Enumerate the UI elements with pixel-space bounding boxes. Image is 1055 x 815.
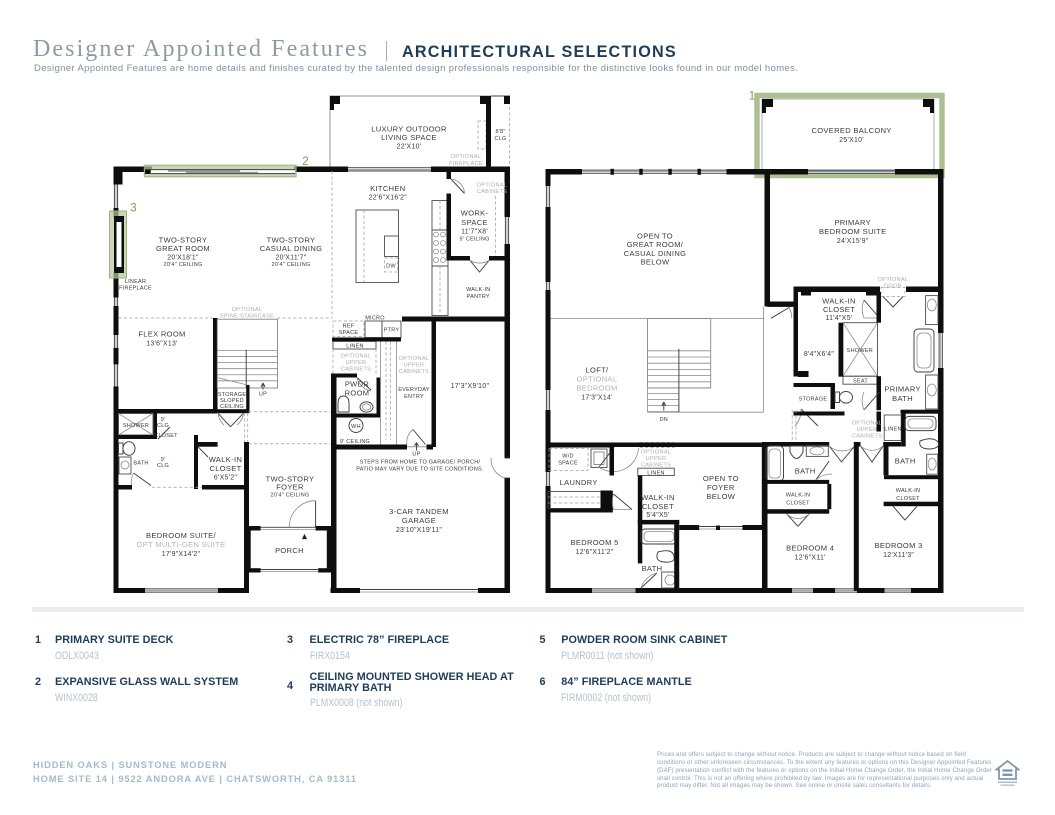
svg-text:WALK-IN: WALK-IN bbox=[896, 488, 920, 494]
svg-text:22'6"X16'2": 22'6"X16'2" bbox=[369, 195, 408, 202]
svg-text:BEDROOM SUITE/: BEDROOM SUITE/ bbox=[146, 531, 216, 540]
svg-text:UPPER: UPPER bbox=[857, 427, 878, 433]
svg-text:WALK-IN: WALK-IN bbox=[786, 493, 810, 499]
svg-text:OPTIONAL: OPTIONAL bbox=[852, 421, 883, 427]
svg-text:DW: DW bbox=[386, 264, 396, 270]
svg-text:SHOWER: SHOWER bbox=[123, 423, 149, 429]
svg-text:PRIMARY: PRIMARY bbox=[884, 385, 921, 394]
svg-text:20'4" CEILING: 20'4" CEILING bbox=[164, 262, 203, 268]
svg-text:GARAGE: GARAGE bbox=[402, 516, 436, 525]
svg-text:20'4" CEILING: 20'4" CEILING bbox=[271, 493, 310, 499]
svg-text:CABINETS: CABINETS bbox=[399, 369, 429, 375]
svg-text:STORAGE: STORAGE bbox=[218, 392, 247, 398]
svg-text:PWDR: PWDR bbox=[345, 380, 370, 389]
svg-text:BATH: BATH bbox=[895, 457, 916, 466]
svg-text:CEILING: CEILING bbox=[220, 404, 244, 410]
svg-text:BELOW: BELOW bbox=[706, 492, 735, 501]
svg-text:11'7"X8': 11'7"X8' bbox=[461, 228, 488, 235]
svg-text:LINEAR: LINEAR bbox=[125, 279, 146, 285]
svg-text:5'4"X5': 5'4"X5' bbox=[646, 512, 669, 519]
svg-text:OPTIONAL: OPTIONAL bbox=[477, 183, 508, 189]
svg-text:2: 2 bbox=[302, 156, 308, 168]
svg-text:W/D: W/D bbox=[562, 454, 573, 460]
svg-text:EVERYDAY: EVERYDAY bbox=[398, 387, 430, 393]
svg-text:11'4"X5': 11'4"X5' bbox=[826, 315, 853, 322]
svg-text:FLEX ROOM: FLEX ROOM bbox=[138, 330, 185, 339]
svg-text:COVERED BALCONY: COVERED BALCONY bbox=[811, 126, 891, 135]
svg-text:FOYER: FOYER bbox=[707, 483, 735, 492]
svg-text:CLOSET: CLOSET bbox=[786, 501, 810, 507]
svg-text:WALK-IN: WALK-IN bbox=[209, 455, 242, 464]
svg-text:WORK-: WORK- bbox=[461, 209, 489, 218]
svg-text:CLG: CLG bbox=[157, 423, 169, 429]
svg-text:PORCH: PORCH bbox=[275, 546, 304, 555]
svg-text:CABINETS: CABINETS bbox=[852, 434, 882, 440]
svg-text:12'6"X11': 12'6"X11' bbox=[795, 555, 826, 562]
svg-text:DOOR: DOOR bbox=[884, 284, 902, 290]
svg-text:CLG: CLG bbox=[494, 136, 506, 142]
svg-text:CLOSET: CLOSET bbox=[896, 496, 920, 502]
svg-text:PTRY: PTRY bbox=[384, 328, 400, 334]
svg-text:GREAT ROOM: GREAT ROOM bbox=[156, 244, 210, 253]
svg-text:BATH: BATH bbox=[133, 461, 148, 467]
svg-text:LINEN: LINEN bbox=[884, 427, 901, 433]
svg-text:CLG: CLG bbox=[157, 463, 169, 469]
svg-text:12'X11'3": 12'X11'3" bbox=[883, 552, 914, 559]
svg-text:SHOWER: SHOWER bbox=[847, 348, 873, 354]
svg-text:UPPER: UPPER bbox=[346, 360, 367, 366]
svg-text:9' CEILING: 9' CEILING bbox=[460, 237, 490, 243]
svg-text:PRIMARY: PRIMARY bbox=[834, 218, 871, 227]
svg-text:CLOSET: CLOSET bbox=[642, 502, 674, 511]
svg-text:BEDROOM 4: BEDROOM 4 bbox=[786, 544, 834, 553]
svg-text:FOYER: FOYER bbox=[276, 483, 304, 492]
svg-text:OPTIONAL: OPTIONAL bbox=[577, 375, 618, 384]
svg-text:SPACE: SPACE bbox=[558, 461, 578, 467]
svg-text:OPTIONAL: OPTIONAL bbox=[641, 450, 672, 456]
svg-text:LIVING SPACE: LIVING SPACE bbox=[381, 133, 437, 142]
svg-text:WALK-IN: WALK-IN bbox=[641, 493, 674, 502]
svg-text:BEDROOM SUITE: BEDROOM SUITE bbox=[819, 227, 886, 236]
svg-text:CABINETS: CABINETS bbox=[477, 189, 507, 195]
svg-text:20'X18'1": 20'X18'1" bbox=[167, 254, 199, 261]
svg-text:STEPS FROM HOME TO GARAGE/ POR: STEPS FROM HOME TO GARAGE/ PORCH/ bbox=[360, 460, 481, 466]
svg-text:3-CAR TANDEM: 3-CAR TANDEM bbox=[389, 507, 449, 516]
svg-text:24'X15'9": 24'X15'9" bbox=[837, 238, 869, 245]
svg-text:17'3"X9'10": 17'3"X9'10" bbox=[451, 383, 490, 390]
svg-text:ROOM: ROOM bbox=[345, 389, 370, 398]
svg-text:CLOSET: CLOSET bbox=[209, 464, 241, 473]
svg-text:BATH: BATH bbox=[892, 394, 913, 403]
svg-text:SPACE: SPACE bbox=[461, 218, 488, 227]
svg-text:UP: UP bbox=[259, 392, 267, 398]
svg-text:13'6"X13': 13'6"X13' bbox=[146, 341, 178, 348]
svg-text:OPTIONAL: OPTIONAL bbox=[878, 277, 909, 283]
svg-text:BATH: BATH bbox=[642, 564, 663, 573]
svg-text:SPINE STAIRCASE: SPINE STAIRCASE bbox=[220, 313, 274, 319]
svg-text:BATH: BATH bbox=[795, 467, 816, 476]
svg-text:CLOSET: CLOSET bbox=[154, 433, 178, 439]
svg-text:BELOW: BELOW bbox=[641, 257, 670, 266]
svg-text:WALK-IN: WALK-IN bbox=[466, 287, 490, 293]
svg-text:BEDROOM: BEDROOM bbox=[576, 384, 617, 393]
svg-text:25'X10': 25'X10' bbox=[839, 137, 864, 144]
svg-text:17'3"X14': 17'3"X14' bbox=[581, 395, 613, 402]
svg-text:OPEN TO: OPEN TO bbox=[703, 474, 739, 483]
svg-text:1: 1 bbox=[749, 91, 755, 103]
svg-text:UPPER: UPPER bbox=[646, 456, 667, 462]
svg-text:LAUNDRY: LAUNDRY bbox=[560, 478, 598, 487]
svg-text:8'8": 8'8" bbox=[495, 129, 505, 135]
svg-text:6'X5'2": 6'X5'2" bbox=[214, 475, 238, 482]
svg-text:DN: DN bbox=[660, 417, 668, 423]
svg-text:LINEN: LINEN bbox=[647, 470, 664, 476]
svg-text:OPTIONAL: OPTIONAL bbox=[341, 354, 372, 360]
svg-text:22'X10': 22'X10' bbox=[397, 143, 422, 150]
svg-text:STORAGE: STORAGE bbox=[799, 397, 828, 403]
svg-text:SPACE: SPACE bbox=[339, 330, 359, 336]
svg-text:SEAT: SEAT bbox=[853, 379, 868, 385]
svg-text:12'6"X11'2": 12'6"X11'2" bbox=[576, 549, 614, 556]
svg-text:LINEN: LINEN bbox=[346, 344, 363, 350]
svg-text:REF: REF bbox=[343, 324, 355, 330]
svg-text:PATIO MAY VARY DUE TO SITE CON: PATIO MAY VARY DUE TO SITE CONDITIONS. bbox=[356, 467, 484, 473]
svg-text:UPPER: UPPER bbox=[404, 363, 425, 369]
svg-text:FIREPLACE: FIREPLACE bbox=[119, 286, 152, 292]
svg-text:8'4"X6'4": 8'4"X6'4" bbox=[804, 351, 834, 358]
svg-text:BEDROOM 5: BEDROOM 5 bbox=[571, 538, 619, 547]
svg-text:UP: UP bbox=[412, 452, 420, 458]
svg-text:FIREPLACE: FIREPLACE bbox=[449, 161, 483, 167]
svg-text:LOFT/: LOFT/ bbox=[585, 366, 609, 375]
svg-text:ENTRY: ENTRY bbox=[404, 394, 424, 400]
svg-text:CLOSET: CLOSET bbox=[823, 305, 855, 314]
svg-text:OPTIONAL: OPTIONAL bbox=[232, 307, 263, 313]
svg-text:23'10"X19'11": 23'10"X19'11" bbox=[396, 527, 442, 534]
svg-text:SLOPED: SLOPED bbox=[220, 398, 244, 404]
svg-text:OPTIONAL: OPTIONAL bbox=[399, 356, 430, 362]
svg-text:20'X11'7": 20'X11'7" bbox=[275, 254, 306, 261]
svg-text:PANTRY: PANTRY bbox=[467, 294, 490, 300]
svg-text:CABINETS: CABINETS bbox=[641, 463, 671, 469]
svg-text:3: 3 bbox=[130, 203, 136, 215]
svg-text:CABINETS: CABINETS bbox=[341, 367, 371, 373]
svg-text:20'4" CEILING: 20'4" CEILING bbox=[272, 262, 311, 268]
svg-text:17'9"X14'2": 17'9"X14'2" bbox=[162, 551, 201, 558]
svg-text:KITCHEN: KITCHEN bbox=[370, 184, 405, 193]
svg-text:OPT MULTI-GEN SUITE: OPT MULTI-GEN SUITE bbox=[137, 540, 226, 549]
svg-text:OPTIONAL: OPTIONAL bbox=[451, 154, 482, 160]
svg-text:CASUAL DINING: CASUAL DINING bbox=[260, 244, 323, 253]
svg-text:9' CEILING: 9' CEILING bbox=[340, 439, 370, 445]
svg-text:WH: WH bbox=[351, 424, 361, 430]
svg-text:BEDROOM 3: BEDROOM 3 bbox=[875, 541, 923, 550]
